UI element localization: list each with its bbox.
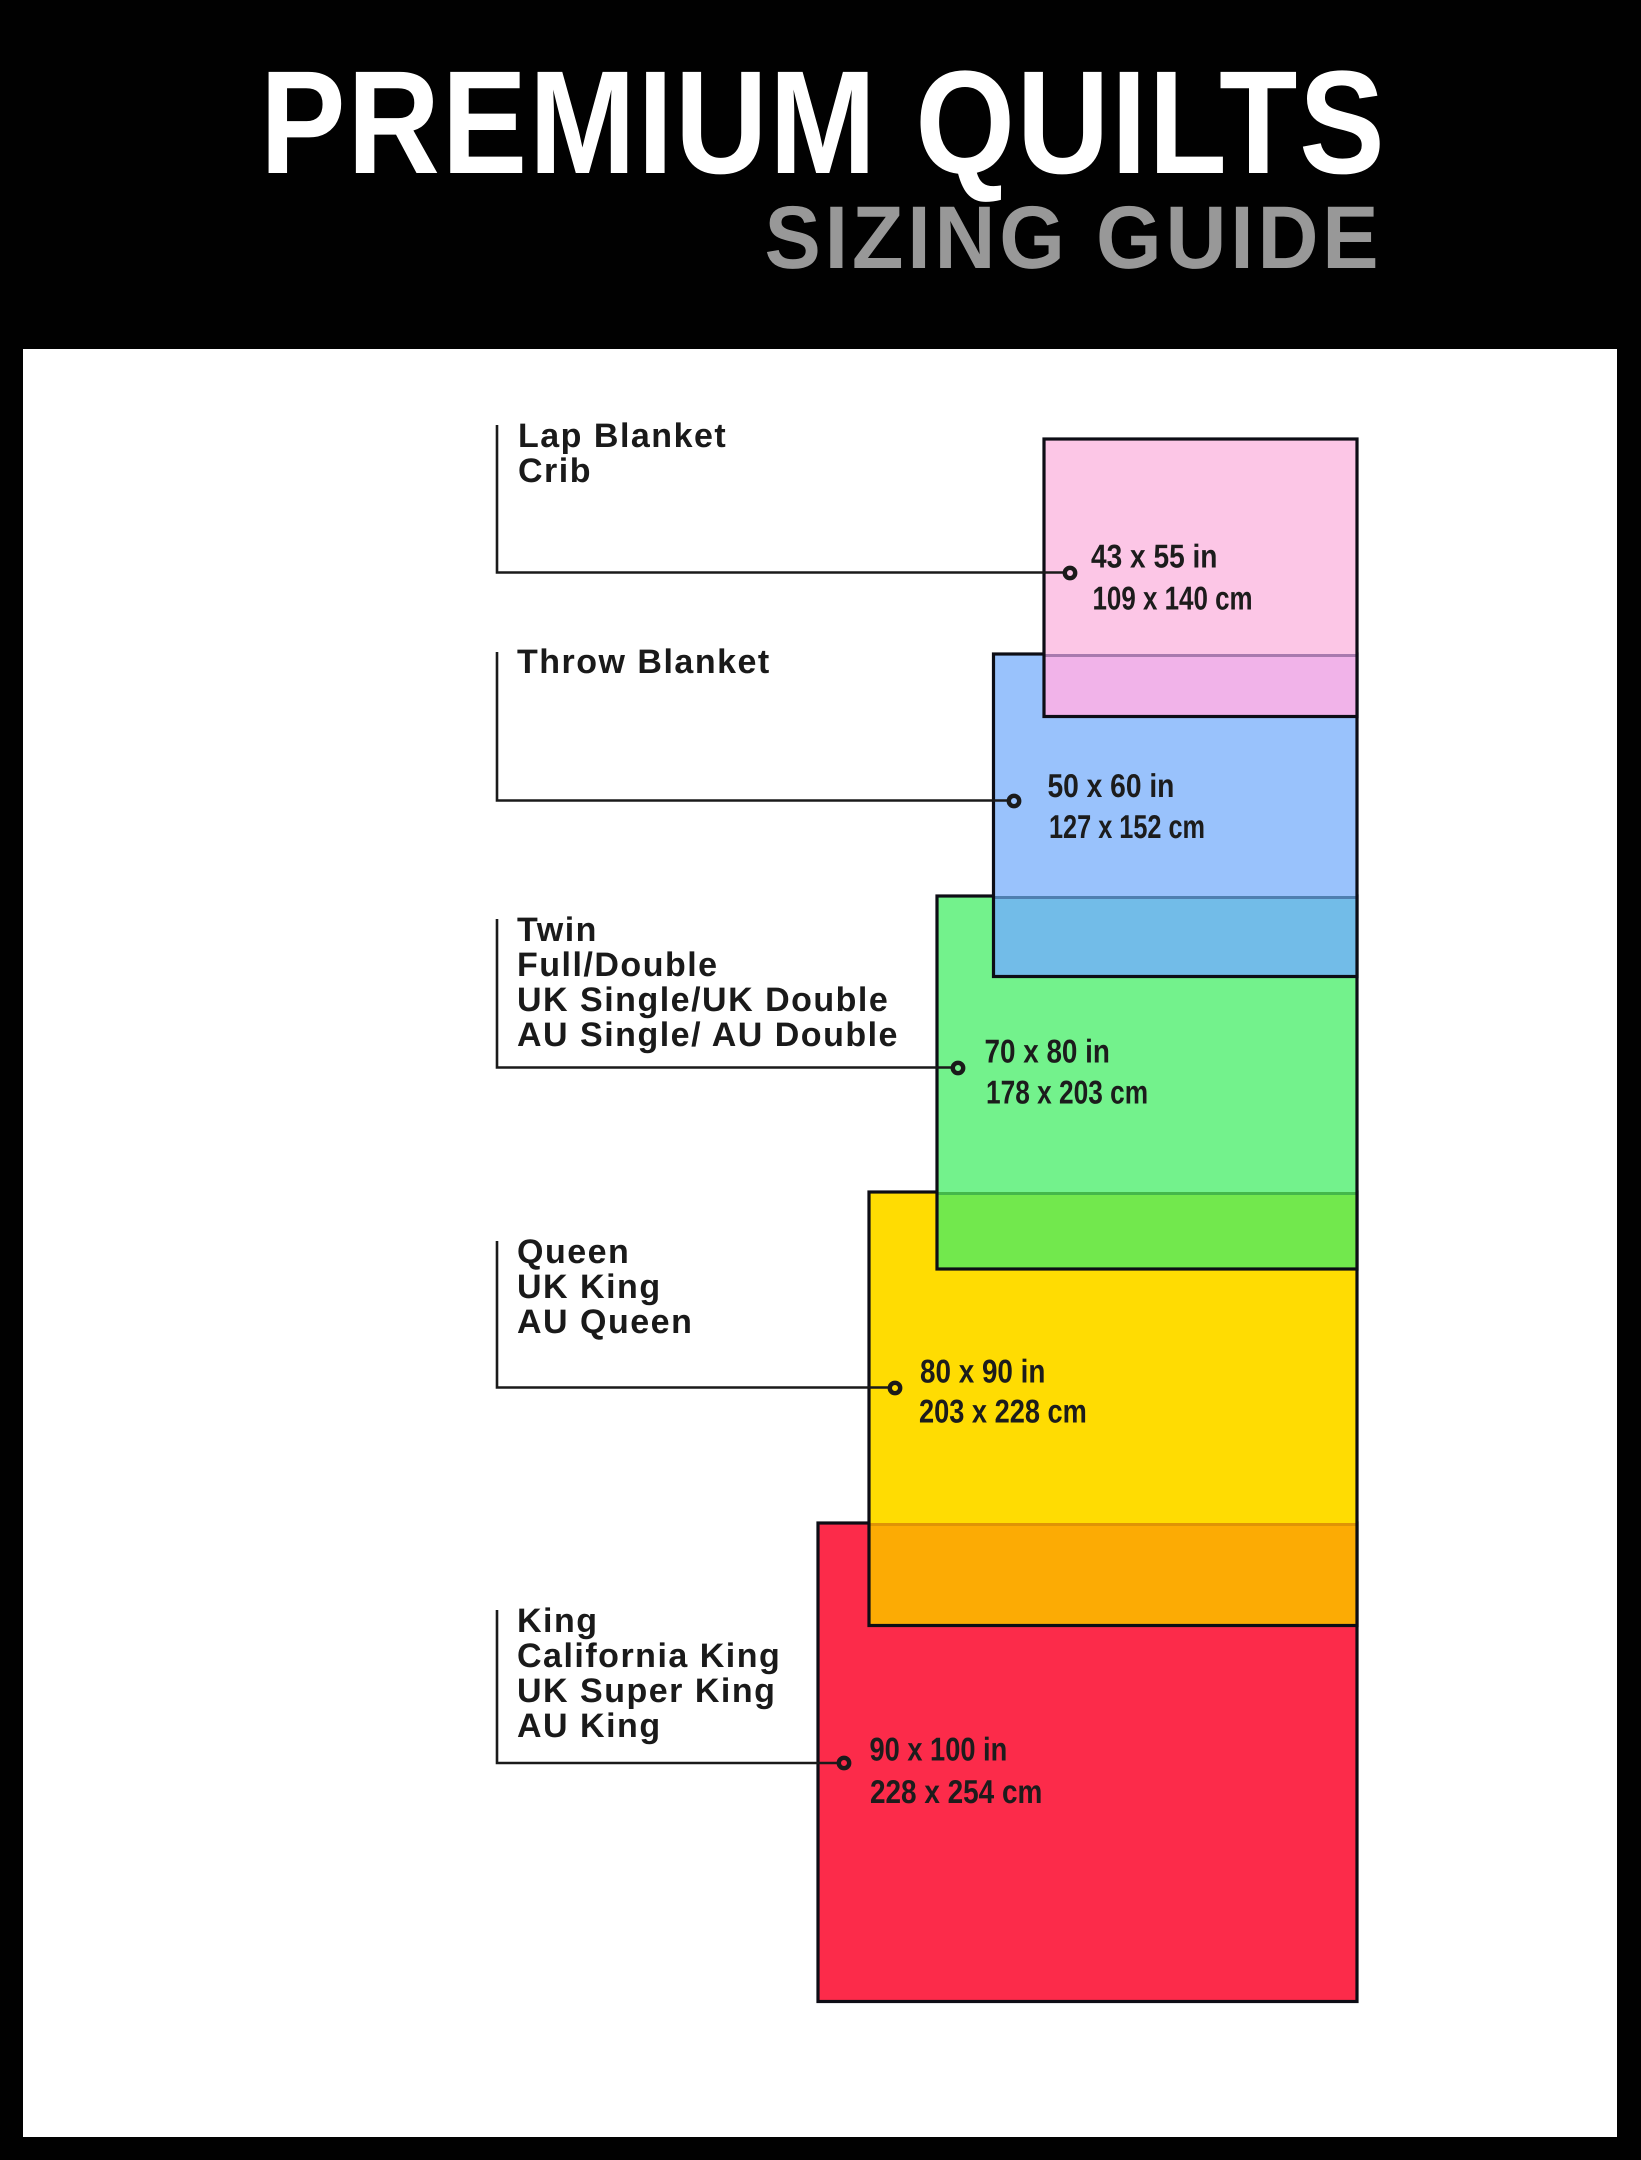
svg-text:203 x 228 cm: 203 x 228 cm (919, 1393, 1087, 1430)
svg-text:90 x 100 in: 90 x 100 in (870, 1731, 1008, 1768)
svg-text:109 x 140 cm: 109 x 140 cm (1093, 580, 1253, 617)
svg-text:Twin: Twin (517, 911, 598, 949)
svg-text:SIZING GUIDE: SIZING GUIDE (765, 187, 1383, 287)
svg-text:Throw Blanket: Throw Blanket (517, 643, 771, 681)
svg-text:Lap Blanket: Lap Blanket (518, 417, 727, 455)
svg-text:70 x 80 in: 70 x 80 in (985, 1033, 1110, 1070)
svg-text:UK King: UK King (517, 1268, 662, 1306)
svg-text:228 x 254 cm: 228 x 254 cm (870, 1773, 1042, 1810)
svg-text:UK Super King: UK Super King (517, 1672, 776, 1710)
svg-text:AU King: AU King (517, 1707, 662, 1745)
svg-text:AU Single/ AU Double: AU Single/ AU Double (517, 1016, 899, 1054)
svg-text:King: King (517, 1602, 599, 1640)
svg-text:UK Single/UK Double: UK Single/UK Double (517, 981, 889, 1019)
svg-text:AU Queen: AU Queen (517, 1303, 693, 1341)
svg-text:Queen: Queen (517, 1233, 630, 1271)
svg-text:Full/Double: Full/Double (517, 946, 719, 984)
svg-text:43 x 55 in: 43 x 55 in (1091, 538, 1217, 575)
svg-text:Crib: Crib (518, 452, 592, 490)
svg-text:PREMIUM QUILTS: PREMIUM QUILTS (260, 41, 1386, 205)
svg-text:50 x 60 in: 50 x 60 in (1048, 767, 1175, 804)
svg-text:80 x 90 in: 80 x 90 in (920, 1353, 1045, 1390)
svg-text:California King: California King (517, 1637, 781, 1675)
svg-text:178 x 203 cm: 178 x 203 cm (986, 1074, 1148, 1111)
svg-text:127 x 152 cm: 127 x 152 cm (1049, 808, 1205, 845)
